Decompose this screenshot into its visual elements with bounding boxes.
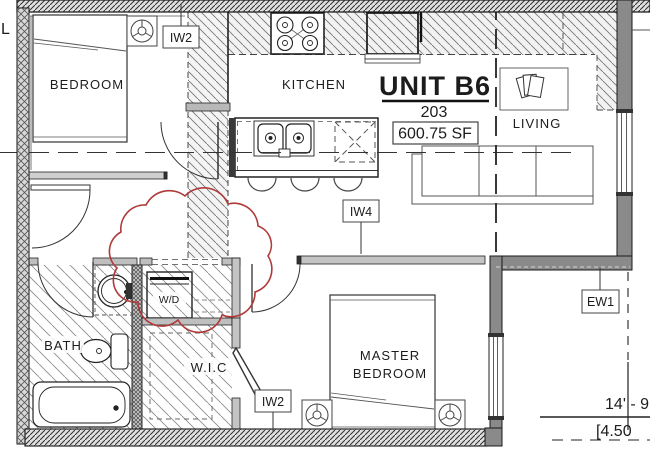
coffee-table [500,68,568,110]
master-bedroom-label-line2: BEDROOM [353,366,427,381]
master-bedroom-label-line1: MASTER [360,348,420,363]
wic-label: W.I.C [191,360,228,375]
bedroom-bed [30,15,185,170]
unit-number: 203 [421,104,448,121]
washer-dryer-label: W/D [159,294,180,306]
bath-label: BATH [44,338,82,353]
dimension-metric: [4.50 [596,423,632,440]
bedroom-label: BEDROOM [50,77,124,92]
sofa [412,146,593,204]
floor-plan-drawing: 14' - 9 [4.50 IW2 IW4 IW2 EW1 BEDROOM KI… [0,0,650,449]
wall-tag-iw4: IW4 [350,205,372,219]
wall-tag-iw2-top: IW2 [170,31,192,45]
unit-area: 600.75 SF [398,126,472,143]
partial-left-label: L [1,21,10,38]
master-bed [330,295,435,432]
kitchen-label: KITCHEN [282,77,346,92]
bathtub [33,382,130,427]
plumbing-chase [188,12,228,258]
wall-tag-ew1: EW1 [587,295,614,309]
wic-floor-hatch [142,325,232,430]
floor-plan-sheet: 14' - 9 [4.50 IW2 IW4 IW2 EW1 BEDROOM KI… [0,0,650,449]
window-living [616,109,633,196]
dimension-imperial: 14' - 9 [605,396,649,413]
double-sink [254,121,314,157]
living-label: LIVING [513,116,562,131]
nightstand-speaker-right-icon [435,400,465,430]
bedroom-ceiling-fan-icon [127,16,157,46]
unit-title: UNIT B6 [379,71,491,101]
window-master [488,333,504,420]
bar-stools [248,178,362,191]
nightstand-speaker-left-icon [302,400,332,430]
living-corner-soffit [597,55,618,110]
stove [271,13,324,54]
wall-tag-iw2-bottom: IW2 [262,395,284,409]
